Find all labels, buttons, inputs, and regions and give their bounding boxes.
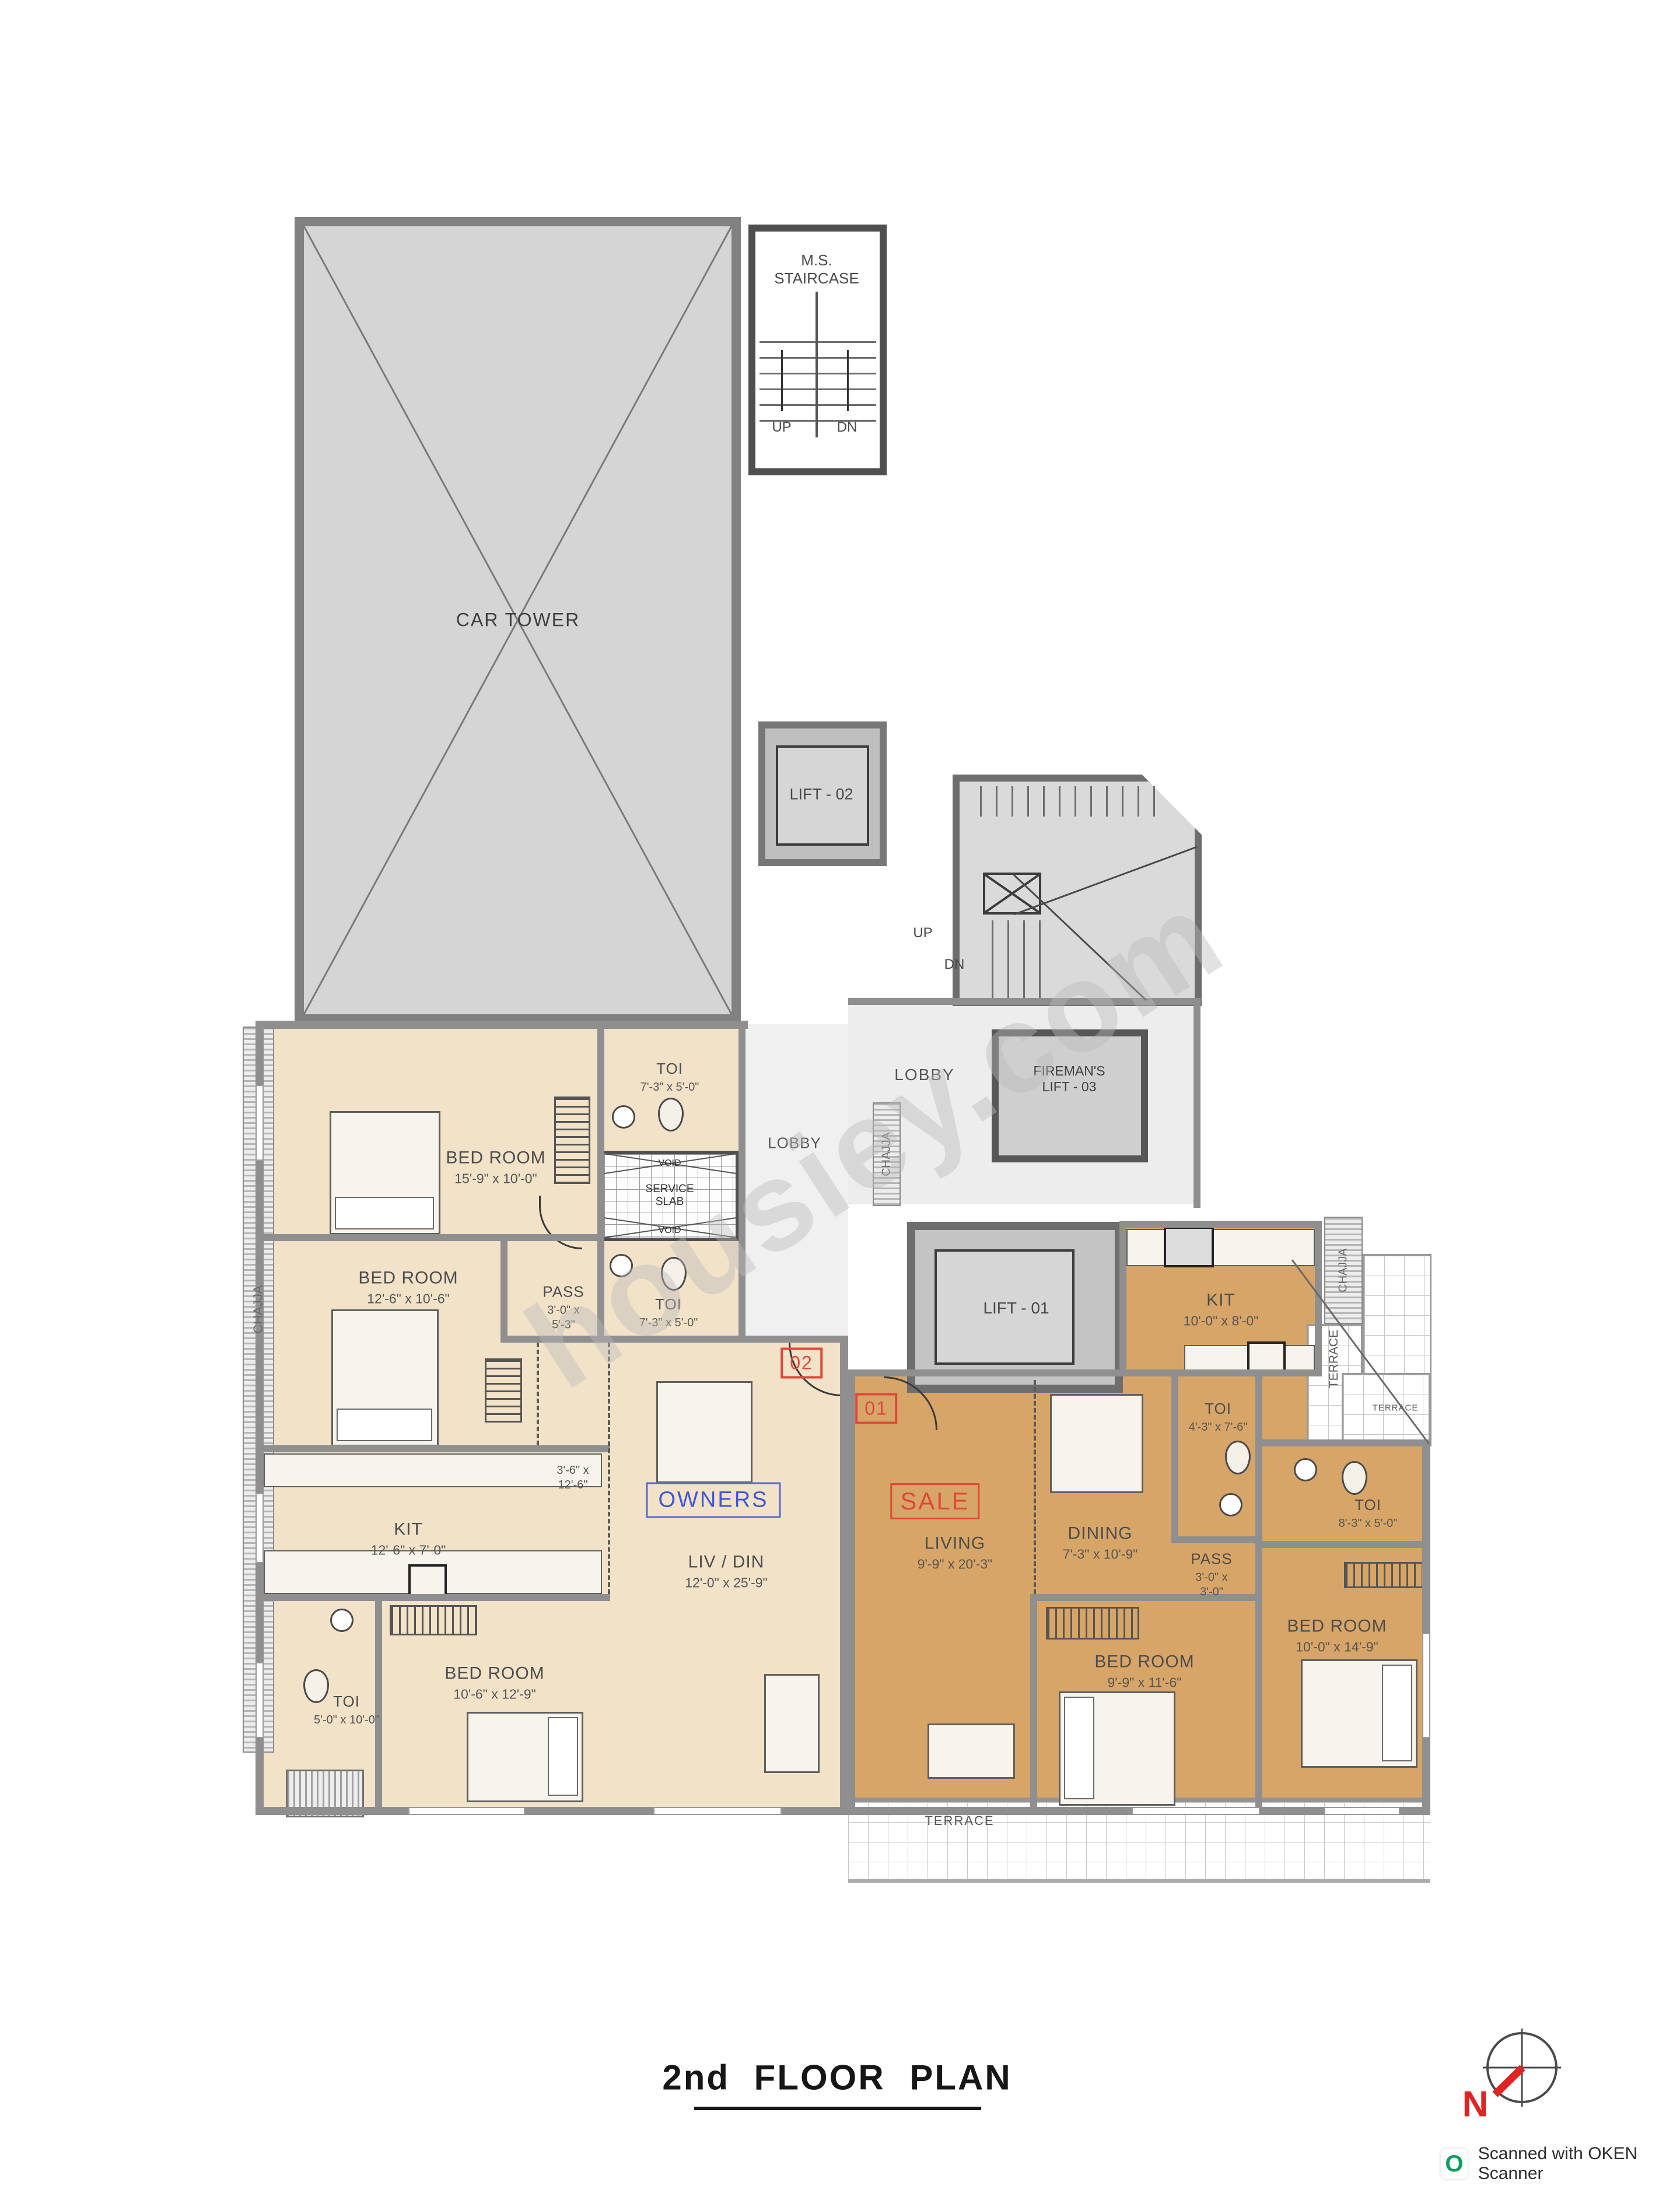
room-label-u01-toi2: TOI 8'-3" x 5'-0"	[1339, 1496, 1398, 1531]
room-name: BED ROOM	[1094, 1652, 1194, 1672]
oken-scanner-icon: O	[1441, 2149, 1468, 2179]
room-dims: 10'-6" x 12'-9"	[444, 1686, 544, 1703]
room-label-u01-bedroom1: BED ROOM 9'-9" x 11'-6"	[1094, 1652, 1194, 1691]
window	[256, 1493, 264, 1563]
room-label-u02-bedroom2: BED ROOM 12'-6" x 10'-6"	[358, 1269, 458, 1308]
wall	[840, 1336, 848, 1815]
bed-pillows	[1064, 1697, 1094, 1799]
open-plan-divider	[1034, 1380, 1036, 1594]
terrace-right-vertical-label: TERRACE	[1327, 1330, 1341, 1388]
service-slab-label-line2: SLAB	[645, 1196, 694, 1208]
bed	[330, 1111, 440, 1235]
kitchen-sink	[1164, 1227, 1214, 1267]
dining-table	[1050, 1394, 1143, 1493]
room-label-u01-pass: PASS 3'-0" x 3'-0"	[1191, 1550, 1232, 1600]
service-slab-label-line1: SERVICE	[645, 1183, 694, 1196]
wall	[848, 998, 1200, 1005]
room-name: TOI	[314, 1693, 379, 1711]
room-dims: 10'-0" x 8'-0"	[1184, 1313, 1259, 1330]
toilet-sink	[330, 1609, 353, 1632]
bed-pillows	[337, 1409, 432, 1441]
window	[256, 1662, 264, 1738]
toilet-sink	[1219, 1493, 1242, 1516]
wall	[256, 1445, 610, 1452]
open-plan-divider	[537, 1343, 539, 1445]
ms-staircase-dn-line	[847, 350, 849, 411]
room-name: KIT	[1184, 1291, 1259, 1311]
room-dims: 5'-0" x 10'-0"	[314, 1713, 379, 1728]
lift-02-label: LIFT - 02	[789, 786, 853, 804]
wall	[256, 1594, 610, 1601]
room-name: BED ROOM	[446, 1148, 545, 1168]
window	[1422, 1633, 1430, 1738]
bed	[331, 1309, 439, 1446]
room-dims: 9'-9" x 11'-6"	[1094, 1674, 1194, 1691]
room-dims: 7'-3" x 5'-0"	[640, 1080, 699, 1095]
room-name: TOI	[1339, 1496, 1398, 1514]
room-name: DINING	[1063, 1524, 1138, 1544]
room-label-u01-bedroom2: BED ROOM 10'-0" x 14'-9"	[1287, 1617, 1387, 1656]
room-label-u01-kitchen: KIT 10'-0" x 8'-0"	[1184, 1291, 1259, 1330]
wardrobe	[1046, 1607, 1139, 1639]
unit-01-badge: 01	[855, 1393, 897, 1424]
void-bottom-label: VOID	[658, 1225, 681, 1236]
wall	[738, 1021, 745, 1343]
terrace-bottom-label: TERRACE	[925, 1813, 994, 1828]
mid-staircase-treads-down	[992, 920, 1055, 1005]
room-dims: 12'-0" x 25'-9"	[685, 1575, 767, 1592]
ms-staircase-label: M.S. STAIRCASE	[774, 251, 859, 288]
kitchen-counter	[264, 1453, 602, 1487]
toilet-sink	[610, 1254, 633, 1277]
wardrobe	[390, 1605, 477, 1635]
wall	[1119, 1221, 1322, 1228]
bed-pillows	[548, 1717, 578, 1796]
chajja-right-label: CHAJJA	[1337, 1248, 1350, 1292]
void-top-label: VOID	[658, 1158, 681, 1169]
room-dims: 7'-3" x 10'-9"	[1063, 1546, 1138, 1563]
wall	[1193, 998, 1200, 1208]
stair-up-label: UP	[913, 925, 932, 941]
room-label-u02-bedroom1: BED ROOM 15'-9" x 10'-0"	[446, 1148, 545, 1187]
window	[408, 1807, 525, 1815]
room-label-u01-dining: DINING 7'-3" x 10'-9"	[1063, 1524, 1138, 1563]
dining-table	[656, 1381, 752, 1483]
room-dims: 7'-3" x 5'-0"	[639, 1316, 698, 1330]
room-name: LIVING	[918, 1534, 993, 1554]
room-dims: 4'-3" x 7'-6"	[1189, 1420, 1248, 1435]
room-label-u02-toi3: TOI 5'-0" x 10'-0"	[314, 1693, 379, 1728]
room-name: BED ROOM	[358, 1269, 458, 1288]
service-slab-label: SERVICE SLAB	[645, 1183, 694, 1208]
wardrobe	[485, 1358, 522, 1423]
window	[256, 1085, 264, 1161]
room-dims: 15'-9" x 10'-0"	[446, 1171, 545, 1187]
wall	[256, 1234, 604, 1241]
wall	[1255, 1541, 1430, 1548]
room-dims: 3'-0" x 5'-3"	[542, 1304, 584, 1333]
room-dims: 10'-0" x 14'-9"	[1287, 1639, 1387, 1656]
ms-staircase-up-line	[781, 350, 783, 411]
window	[653, 1807, 782, 1815]
room-dims: 3'-6" x 12'-6"	[556, 1463, 589, 1493]
room-label-u02-pass: PASS 3'-0" x 5'-3"	[542, 1283, 584, 1333]
lobby-main-label: LOBBY	[894, 1066, 954, 1084]
room-label-u02-toi1: TOI 7'-3" x 5'-0"	[640, 1060, 699, 1095]
room-label-u02-toi2: TOI 7'-3" x 5'-0"	[639, 1295, 698, 1330]
room-label-u02-kitchen: KIT 12'-6" x 7'-0"	[371, 1520, 446, 1559]
bed-pillows	[1382, 1665, 1412, 1761]
sofa	[764, 1674, 820, 1773]
bed	[1059, 1691, 1175, 1806]
fireman-lift-label: FIREMAN'S LIFT - 03	[1033, 1063, 1105, 1095]
ms-staircase-treads	[759, 341, 876, 432]
room-dims: 9'-9" x 20'-3"	[918, 1556, 993, 1573]
room-name: PASS	[542, 1283, 584, 1301]
floor-plan-page: CAR TOWER M.S. STAIRCASE UP DN LIFT - 02…	[0, 0, 1680, 2186]
chajja-core-label: CHAJJA	[880, 1132, 894, 1176]
sofa	[928, 1723, 1015, 1779]
room-dims: 3'-0" x 3'-0"	[1191, 1571, 1232, 1600]
chajja-left-label: CHAJJA	[251, 1285, 266, 1333]
wall	[848, 1369, 855, 1815]
room-label-u02-livdin: LIV / DIN 12'-0" x 25'-9"	[685, 1553, 767, 1592]
room-label-u02-passage-dims: 3'-6" x 12'-6"	[556, 1461, 589, 1493]
bed	[1301, 1659, 1417, 1768]
wall	[256, 1021, 748, 1029]
wall	[597, 1021, 604, 1343]
fireman-lift-label-line1: FIREMAN'S	[1033, 1063, 1105, 1079]
lift-01-label: LIFT - 01	[983, 1299, 1049, 1318]
wall	[848, 1369, 1322, 1376]
room-label-u01-living: LIVING 9'-9" x 20'-3"	[918, 1534, 993, 1573]
wall	[1171, 1536, 1262, 1543]
wall	[501, 1336, 848, 1343]
fireman-lift-label-line2: LIFT - 03	[1033, 1079, 1105, 1095]
wall	[1255, 1369, 1262, 1815]
ms-staircase-label-line2: STAIRCASE	[774, 269, 859, 288]
room-name: LIV / DIN	[685, 1553, 767, 1572]
wall	[1315, 1221, 1322, 1376]
wall	[501, 1234, 508, 1343]
wall	[1119, 1221, 1126, 1376]
kitchen-counter	[1126, 1229, 1315, 1266]
window	[1324, 1807, 1400, 1815]
page-title-underline	[694, 2107, 981, 2110]
ms-up-label: UP	[772, 419, 791, 436]
bed	[467, 1712, 583, 1802]
mid-staircase-treads-top	[980, 786, 1155, 817]
unit-02-badge: 02	[780, 1348, 822, 1379]
ms-dn-label: DN	[837, 419, 857, 436]
wardrobe	[554, 1096, 590, 1184]
car-tower-label: CAR TOWER	[456, 609, 580, 631]
compass-icon	[1483, 2029, 1561, 2107]
bed-pillows	[335, 1197, 434, 1229]
ms-staircase-divider	[815, 292, 818, 437]
room-name: BED ROOM	[1287, 1617, 1387, 1637]
page-title: 2nd FLOOR PLAN	[662, 2058, 1012, 2098]
room-name: TOI	[640, 1060, 699, 1078]
room-name: KIT	[371, 1520, 446, 1540]
mid-staircase-duct	[983, 873, 1041, 915]
toilet-sink	[612, 1105, 635, 1129]
lobby-core-label: LOBBY	[768, 1134, 821, 1152]
ms-staircase-label-line1: M.S.	[774, 251, 859, 269]
room-name: PASS	[1191, 1550, 1232, 1568]
room-label-u01-toi1: TOI 4'-3" x 7'-6"	[1189, 1400, 1248, 1435]
room-name: TOI	[639, 1295, 698, 1313]
wall	[1030, 1594, 1037, 1815]
owners-tag: OWNERS	[646, 1483, 781, 1518]
room-dims: 8'-3" x 5'-0"	[1339, 1516, 1398, 1531]
scanner-attribution: O Scanned with OKEN Scanner	[1441, 2144, 1680, 2184]
stair-dn-label: DN	[944, 957, 965, 973]
scanner-attribution-text: Scanned with OKEN Scanner	[1478, 2144, 1680, 2184]
terrace-small-label: TERRACE	[1373, 1403, 1419, 1413]
lobby-core-fill	[741, 1024, 848, 1339]
compass-north-label: N	[1462, 2084, 1489, 2125]
room-dims: 12'-6" x 7'-0"	[371, 1542, 446, 1559]
wall	[1255, 1439, 1430, 1446]
room-name: BED ROOM	[444, 1664, 544, 1684]
wardrobe	[1344, 1562, 1423, 1588]
wall	[1171, 1376, 1178, 1543]
toilet-sink	[1294, 1458, 1317, 1481]
room-dims: 12'-6" x 10'-6"	[358, 1291, 458, 1308]
room-name: TOI	[1189, 1400, 1248, 1418]
open-plan-divider	[608, 1343, 610, 1594]
window	[1132, 1807, 1260, 1815]
room-label-u02-bedroom3: BED ROOM 10'-6" x 12'-9"	[444, 1664, 544, 1703]
sale-tag: SALE	[890, 1483, 979, 1519]
fireman-lift	[992, 1029, 1148, 1162]
stove	[408, 1564, 447, 1598]
wall	[1422, 1439, 1430, 1815]
